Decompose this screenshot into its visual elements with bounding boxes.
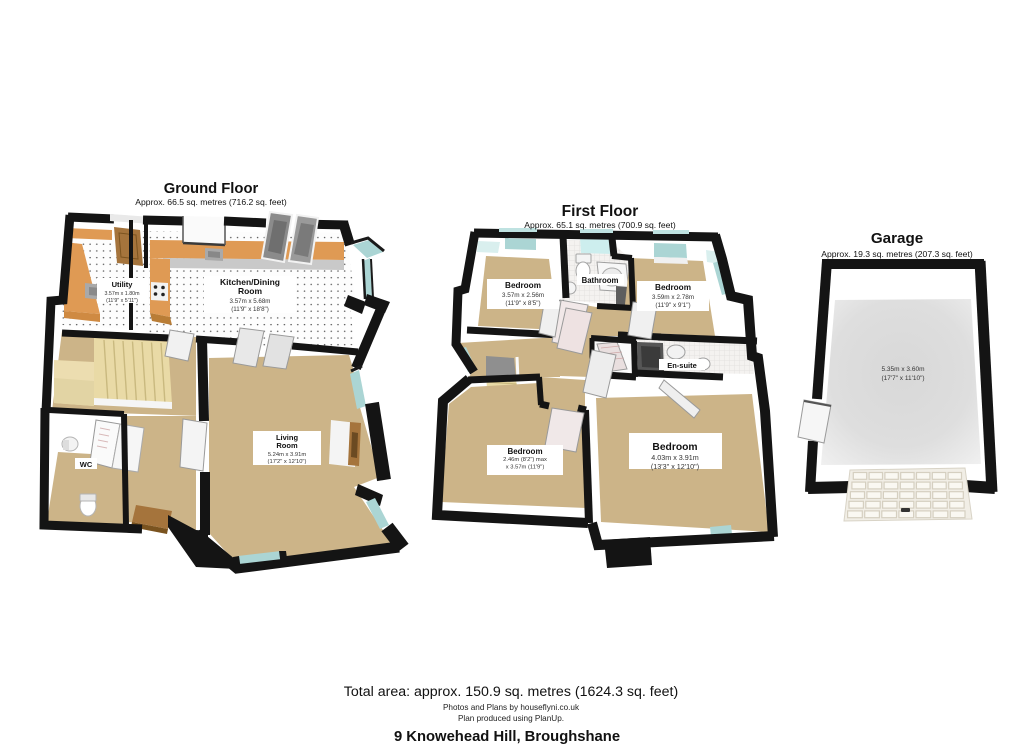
svg-text:Bedroom: Bedroom bbox=[507, 447, 542, 456]
svg-text:Plan produced using PlanUp.: Plan produced using PlanUp. bbox=[458, 714, 564, 723]
svg-text:x 3.57m (11'9"): x 3.57m (11'9") bbox=[506, 465, 545, 471]
svg-text:(11'9" x 9'1"): (11'9" x 9'1") bbox=[655, 302, 690, 309]
svg-text:Room: Room bbox=[276, 441, 298, 450]
svg-text:(11'9" x 5'11"): (11'9" x 5'11") bbox=[106, 298, 138, 304]
svg-text:3.57m x 2.56m: 3.57m x 2.56m bbox=[502, 292, 544, 299]
svg-text:Utility: Utility bbox=[112, 280, 134, 289]
svg-text:First Floor: First Floor bbox=[562, 203, 639, 220]
svg-text:Garage: Garage bbox=[871, 230, 923, 247]
svg-text:Bedroom: Bedroom bbox=[655, 283, 691, 292]
svg-text:2.46m (8'2") max: 2.46m (8'2") max bbox=[503, 457, 547, 463]
svg-text:(11'9" x 8'5"): (11'9" x 8'5") bbox=[505, 300, 540, 307]
svg-text:WC: WC bbox=[80, 460, 93, 469]
svg-text:4.03m x 3.91m: 4.03m x 3.91m bbox=[651, 453, 699, 462]
svg-text:(17'7" x 11'10"): (17'7" x 11'10") bbox=[881, 375, 924, 382]
svg-text:En-suite: En-suite bbox=[667, 361, 697, 370]
svg-text:Approx. 65.1 sq. metres (700.9: Approx. 65.1 sq. metres (700.9 sq. feet) bbox=[524, 220, 676, 230]
svg-text:3.57m x 1.80m: 3.57m x 1.80m bbox=[104, 291, 140, 297]
svg-text:Ground Floor: Ground Floor bbox=[164, 181, 259, 197]
svg-text:(11'9" x 18'8"): (11'9" x 18'8") bbox=[231, 306, 269, 313]
svg-text:Bedroom: Bedroom bbox=[505, 281, 541, 290]
svg-text:5.35m x 3.60m: 5.35m x 3.60m bbox=[882, 366, 925, 373]
svg-text:3.57m x 5.68m: 3.57m x 5.68m bbox=[230, 298, 271, 305]
svg-text:5.24m x 3.91m: 5.24m x 3.91m bbox=[268, 452, 307, 458]
svg-text:9 Knowehead Hill, Broughshane: 9 Knowehead Hill, Broughshane bbox=[394, 729, 620, 744]
svg-text:Bathroom: Bathroom bbox=[582, 276, 619, 285]
svg-text:Room: Room bbox=[238, 286, 263, 296]
svg-text:3.59m x 2.78m: 3.59m x 2.78m bbox=[652, 294, 694, 301]
svg-text:Bedroom: Bedroom bbox=[652, 442, 697, 453]
svg-text:Approx. 19.3 sq. metres (207.3: Approx. 19.3 sq. metres (207.3 sq. feet) bbox=[821, 249, 973, 259]
svg-text:Approx. 66.5 sq. metres (716.2: Approx. 66.5 sq. metres (716.2 sq. feet) bbox=[135, 197, 287, 207]
svg-text:(13'3" x 12'10"): (13'3" x 12'10") bbox=[651, 462, 699, 471]
svg-text:Photos and Plans by houseflyni: Photos and Plans by houseflyni.co.uk bbox=[443, 703, 580, 712]
svg-text:(17'2" x 12'10"): (17'2" x 12'10") bbox=[268, 459, 307, 465]
svg-text:Total area: approx. 150.9 sq.: Total area: approx. 150.9 sq. metres (16… bbox=[344, 684, 678, 700]
